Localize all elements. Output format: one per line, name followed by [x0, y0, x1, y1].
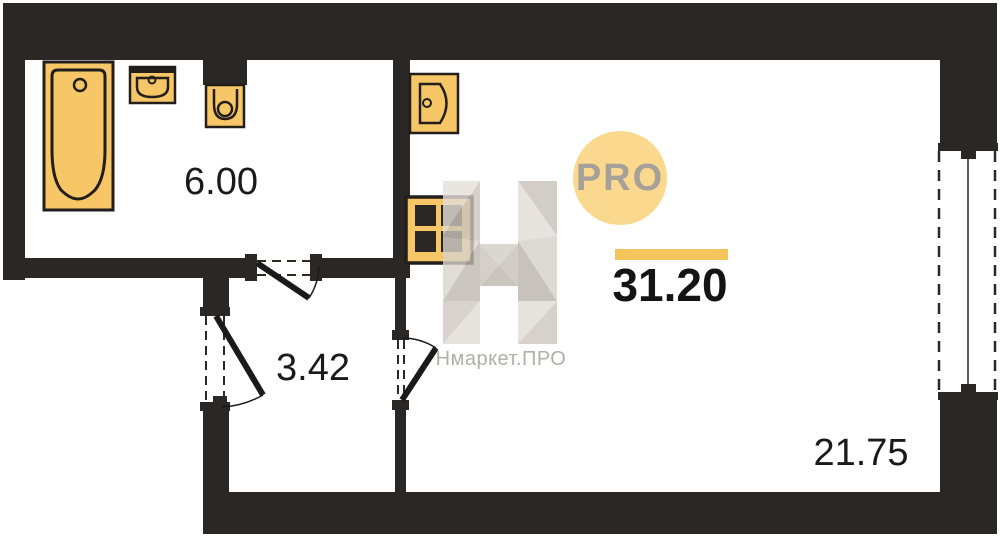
bathroom-sink-icon	[129, 66, 176, 103]
wall-bottom	[203, 492, 997, 534]
pro-badge: PRO	[573, 131, 667, 225]
bathroom-door-jamb-left	[245, 254, 257, 281]
window-reveal-lines	[939, 151, 995, 392]
hallway-area-label: 3.42	[251, 349, 375, 387]
brand-label: Нмаркет.ПРО	[430, 349, 572, 369]
wall-right-upper	[940, 60, 997, 143]
bathtub-icon	[44, 62, 113, 210]
toilet-icon	[203, 60, 247, 127]
window-right	[938, 143, 998, 400]
window-sill-top	[938, 143, 998, 151]
pro-badge-label: PRO	[576, 157, 664, 200]
entrance-door-jamb-top	[200, 307, 230, 316]
living-room-area-label: 21.75	[791, 434, 931, 472]
wall-hall-left-upper	[203, 278, 229, 309]
living-room-door	[402, 338, 436, 400]
wall-top	[3, 3, 997, 60]
total-area-label: 31.20	[600, 262, 740, 308]
kitchen-sink-icon	[410, 74, 458, 133]
wall-interior-upper	[395, 278, 406, 331]
bathroom-area-label: 6.00	[159, 163, 283, 201]
wall-right-lower	[940, 400, 997, 534]
window-frame-nub-top	[961, 151, 976, 159]
bathroom-door	[257, 263, 319, 298]
watermark-letter-icon	[440, 181, 558, 344]
wall-left	[3, 60, 25, 280]
room-door-opening	[398, 340, 404, 400]
room-door-jamb-bottom	[392, 400, 409, 410]
window-frame-nub-bottom	[961, 384, 976, 392]
wall-interior-lower	[395, 409, 406, 492]
window-sill-bottom	[938, 392, 998, 400]
wall-bath-bottom-left	[3, 258, 245, 278]
floor-plan: PRO 31.20 Нмаркет.ПРО 6.00 3.42 21.75	[0, 0, 1000, 539]
wall-bath-bottom-right	[322, 258, 410, 278]
bathroom-door-jamb-right	[310, 254, 322, 281]
